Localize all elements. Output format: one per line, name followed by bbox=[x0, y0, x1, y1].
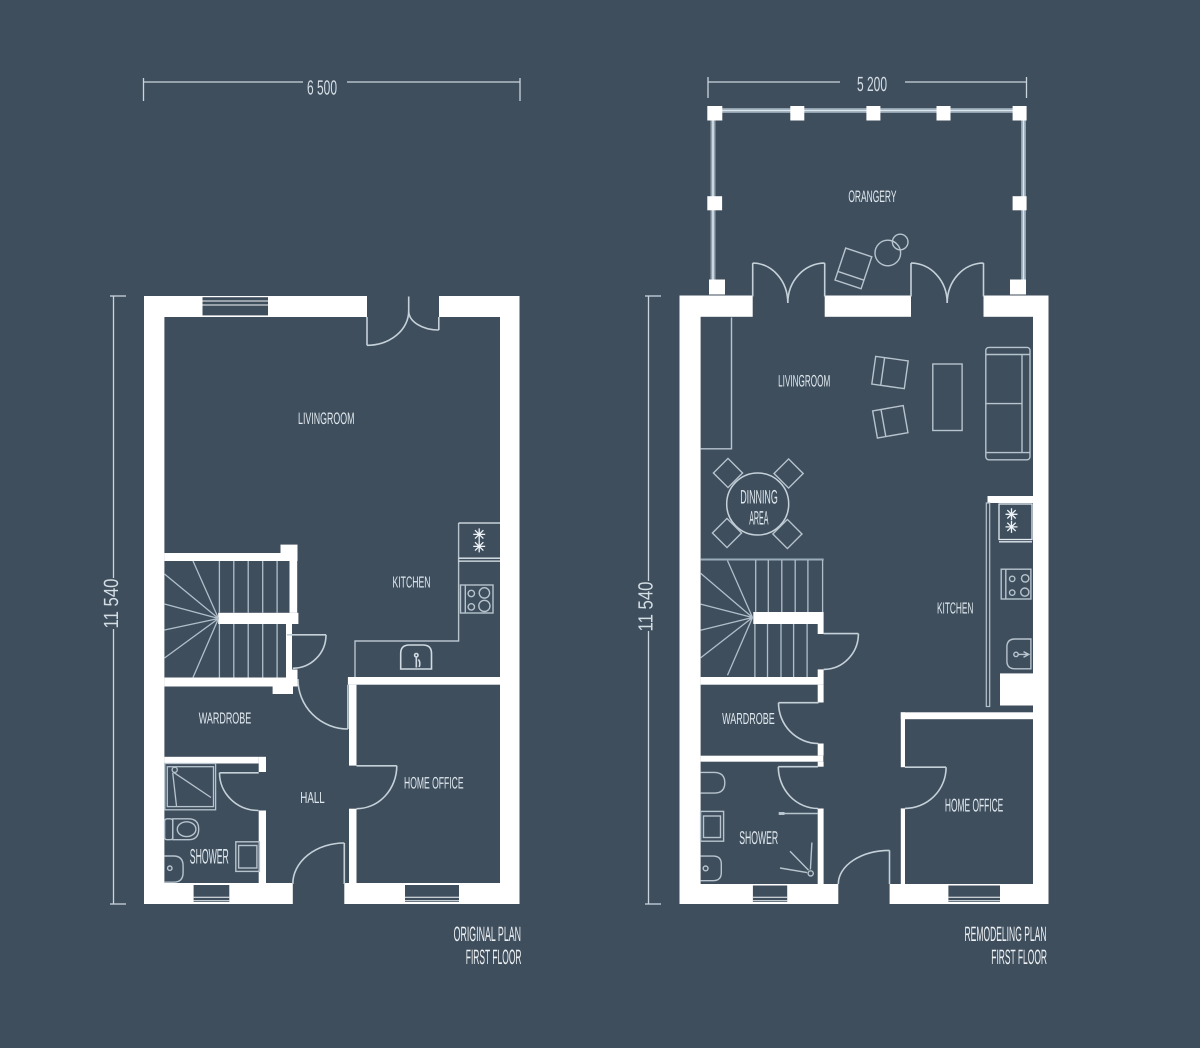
svg-text:WARDROBE: WARDROBE bbox=[199, 710, 252, 727]
svg-text:KITCHEN: KITCHEN bbox=[937, 601, 973, 618]
svg-text:SHOWER: SHOWER bbox=[190, 846, 229, 869]
svg-text:LIVINGROOM: LIVINGROOM bbox=[778, 372, 830, 391]
svg-text:HOME OFFICE: HOME OFFICE bbox=[945, 795, 1003, 816]
svg-text:FIRST FLOOR: FIRST FLOOR bbox=[991, 946, 1047, 969]
svg-text:REMODELING PLAN: REMODELING PLAN bbox=[965, 923, 1047, 946]
svg-text:LIVINGROOM: LIVINGROOM bbox=[298, 409, 355, 428]
svg-text:5 200: 5 200 bbox=[857, 73, 887, 96]
svg-text:FIRST FLOOR: FIRST FLOOR bbox=[466, 946, 522, 969]
svg-text:11 540: 11 540 bbox=[635, 582, 658, 632]
svg-text:WARDROBE: WARDROBE bbox=[722, 711, 775, 728]
svg-text:HALL: HALL bbox=[300, 790, 325, 807]
svg-text:ORANGERY: ORANGERY bbox=[848, 187, 896, 206]
svg-text:11 540: 11 540 bbox=[100, 579, 123, 629]
svg-text:6 500: 6 500 bbox=[307, 77, 337, 100]
svg-text:SHOWER: SHOWER bbox=[739, 827, 778, 848]
svg-text:AREA: AREA bbox=[749, 508, 768, 530]
svg-text:KITCHEN: KITCHEN bbox=[393, 575, 431, 592]
svg-text:DINNING: DINNING bbox=[740, 486, 778, 508]
svg-text:ORIGINAL PLAN: ORIGINAL PLAN bbox=[454, 923, 521, 946]
svg-text:HOME OFFICE: HOME OFFICE bbox=[404, 774, 464, 793]
